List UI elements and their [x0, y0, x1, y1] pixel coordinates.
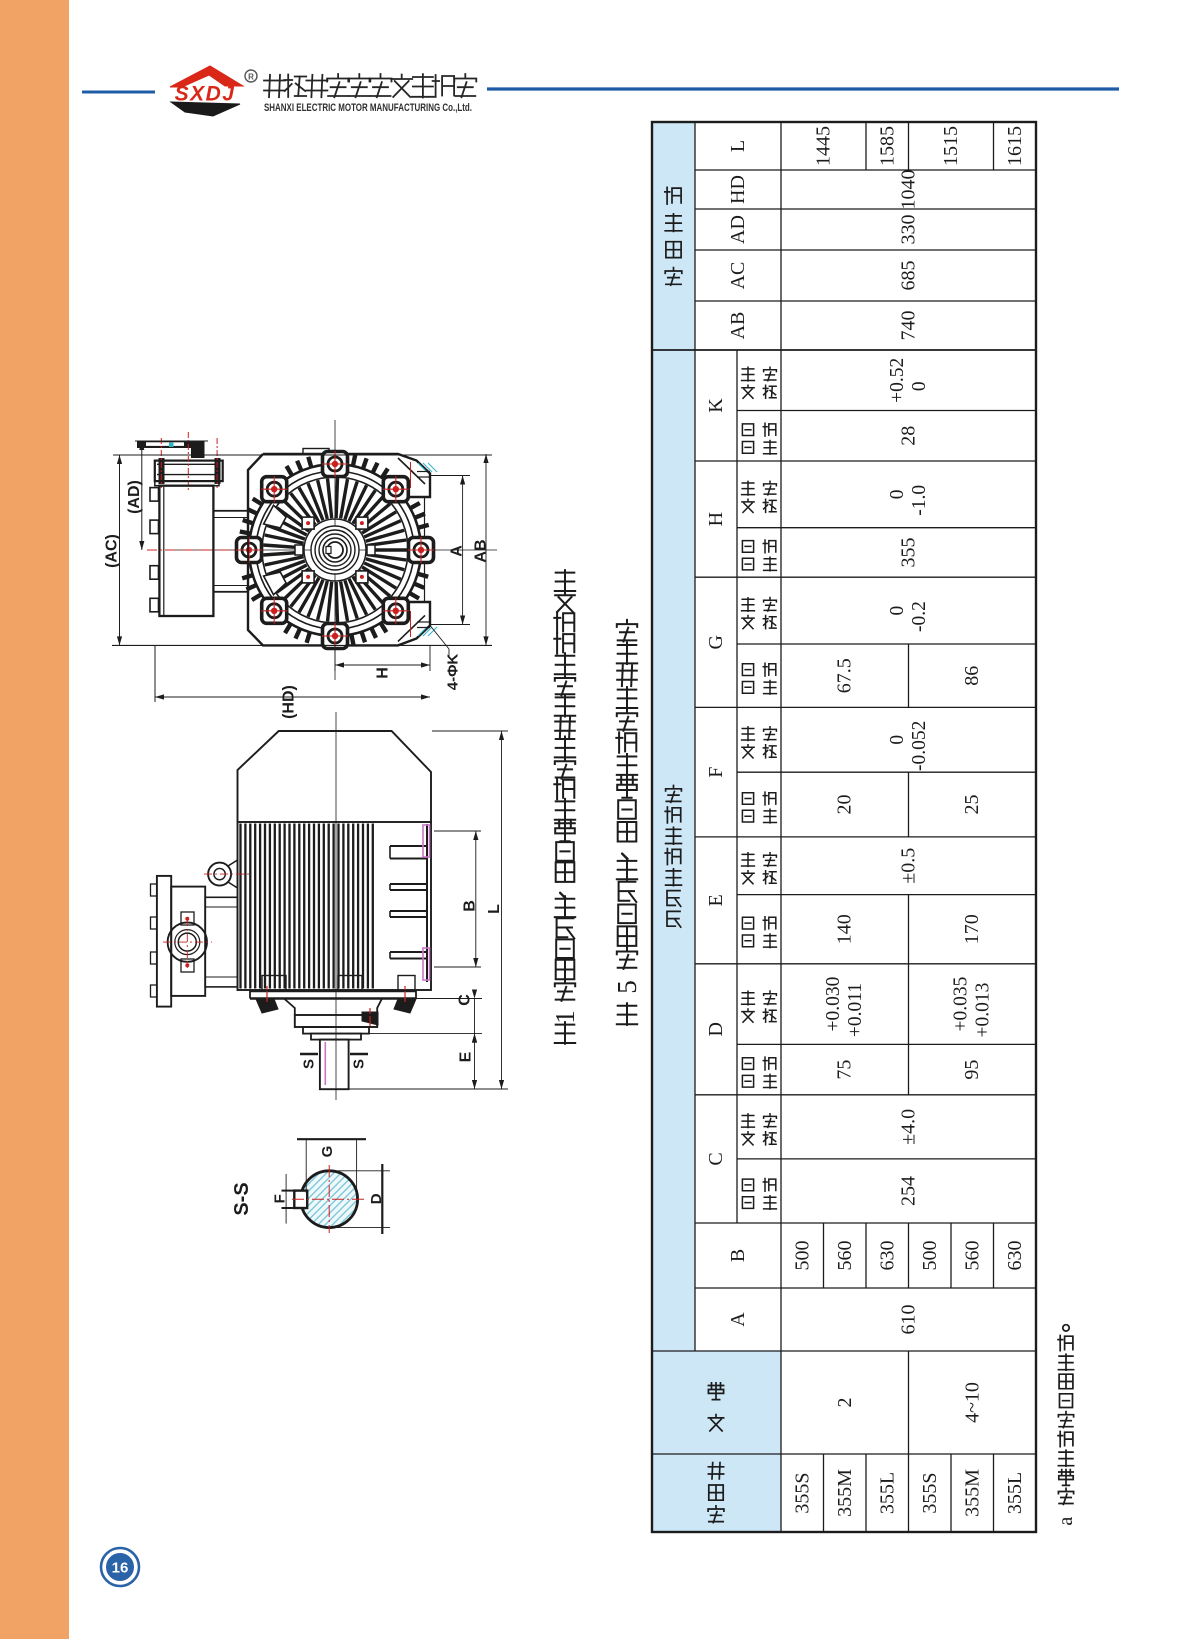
- svg-text:1585: 1585: [876, 126, 898, 166]
- svg-text:SXDJ: SXDJ: [175, 83, 236, 106]
- svg-text:140: 140: [834, 914, 856, 944]
- svg-text:+0.030: +0.030: [823, 977, 844, 1032]
- svg-text:S-S: S-S: [231, 1182, 253, 1215]
- svg-text:1515: 1515: [940, 126, 962, 166]
- svg-text:SHANXI ELECTRIC MOTOR MANUFACT: SHANXI ELECTRIC MOTOR MANUFACTURING Co.,…: [264, 102, 472, 114]
- svg-text:0: 0: [887, 606, 908, 616]
- svg-text:560: 560: [834, 1241, 856, 1271]
- svg-text:A: A: [449, 545, 466, 557]
- svg-text:0: 0: [909, 381, 930, 391]
- svg-text:4~10: 4~10: [961, 1382, 983, 1423]
- svg-text:740: 740: [898, 311, 920, 341]
- svg-text:(AC): (AC): [104, 534, 121, 568]
- svg-text:C: C: [705, 1152, 727, 1165]
- svg-text:330: 330: [898, 215, 920, 245]
- svg-text:560: 560: [961, 1241, 983, 1271]
- svg-text:B: B: [727, 1249, 749, 1262]
- svg-text:95: 95: [961, 1060, 983, 1080]
- svg-text:355: 355: [898, 537, 920, 567]
- svg-text:630: 630: [1004, 1241, 1026, 1271]
- svg-text:±0.5: ±0.5: [898, 848, 920, 884]
- svg-text:-0.052: -0.052: [909, 721, 930, 771]
- svg-text:±4.0: ±4.0: [898, 1109, 920, 1145]
- svg-text:170: 170: [961, 914, 983, 944]
- svg-text:D: D: [705, 1022, 727, 1036]
- svg-text:500: 500: [919, 1241, 941, 1271]
- svg-text:67.5: 67.5: [834, 658, 856, 693]
- svg-text:R: R: [248, 73, 254, 82]
- svg-text:685: 685: [898, 261, 920, 291]
- svg-text:E: E: [458, 1051, 475, 1062]
- svg-text:355S: 355S: [791, 1472, 813, 1513]
- svg-text:610: 610: [898, 1305, 920, 1335]
- svg-text:-1.0: -1.0: [909, 485, 930, 516]
- svg-text:L: L: [727, 140, 749, 152]
- svg-text:B: B: [462, 900, 479, 912]
- svg-text:28: 28: [898, 426, 920, 446]
- svg-text:(AD): (AD): [126, 480, 143, 514]
- svg-text:2: 2: [834, 1398, 856, 1408]
- svg-text:5: 5: [612, 980, 642, 994]
- svg-text:0: 0: [887, 489, 908, 499]
- svg-text:H: H: [375, 667, 392, 679]
- svg-text:K: K: [705, 398, 727, 413]
- svg-text:355L: 355L: [1004, 1472, 1026, 1514]
- svg-text:F: F: [272, 1194, 289, 1203]
- svg-text:1615: 1615: [1004, 126, 1026, 166]
- svg-text:D: D: [368, 1193, 385, 1204]
- svg-text:AC: AC: [727, 262, 749, 290]
- svg-text:355S: 355S: [919, 1472, 941, 1513]
- svg-text:86: 86: [961, 666, 983, 686]
- svg-text:1445: 1445: [813, 126, 835, 166]
- svg-text:355L: 355L: [876, 1472, 898, 1514]
- svg-text:355M: 355M: [834, 1469, 856, 1517]
- svg-text:-0.2: -0.2: [909, 601, 930, 632]
- svg-text:254: 254: [898, 1176, 920, 1206]
- svg-text:630: 630: [876, 1241, 898, 1271]
- svg-text:H: H: [705, 512, 727, 526]
- svg-text:F: F: [705, 767, 727, 778]
- svg-text:355M: 355M: [961, 1469, 983, 1517]
- svg-text:25: 25: [961, 795, 983, 815]
- svg-text:+0.013: +0.013: [973, 983, 994, 1038]
- svg-text:75: 75: [834, 1060, 856, 1080]
- svg-text:20: 20: [834, 795, 856, 815]
- svg-text:G: G: [705, 635, 727, 649]
- svg-text:+0.011: +0.011: [845, 983, 866, 1037]
- svg-text:a: a: [1055, 1517, 1077, 1526]
- svg-text:4-ΦK: 4-ΦK: [445, 654, 462, 691]
- svg-text:AB: AB: [727, 312, 749, 340]
- svg-text:A: A: [727, 1312, 749, 1327]
- svg-text:+0.52: +0.52: [887, 358, 908, 403]
- svg-text:L: L: [486, 904, 503, 914]
- svg-text:1: 1: [550, 1010, 580, 1024]
- svg-text:G: G: [319, 1146, 336, 1158]
- svg-text:HD: HD: [727, 175, 749, 204]
- svg-text:S: S: [351, 1059, 368, 1069]
- svg-text:AB: AB: [473, 539, 490, 562]
- svg-text:1040: 1040: [898, 170, 920, 210]
- svg-text:AD: AD: [727, 215, 749, 244]
- svg-text:16: 16: [112, 1560, 129, 1577]
- svg-text:+0.035: +0.035: [951, 977, 972, 1032]
- svg-text:C: C: [457, 994, 474, 1006]
- svg-text:S: S: [301, 1059, 318, 1069]
- svg-text:E: E: [705, 894, 727, 906]
- svg-text:500: 500: [791, 1241, 813, 1271]
- svg-text:(HD): (HD): [281, 685, 298, 719]
- svg-text:0: 0: [887, 735, 908, 745]
